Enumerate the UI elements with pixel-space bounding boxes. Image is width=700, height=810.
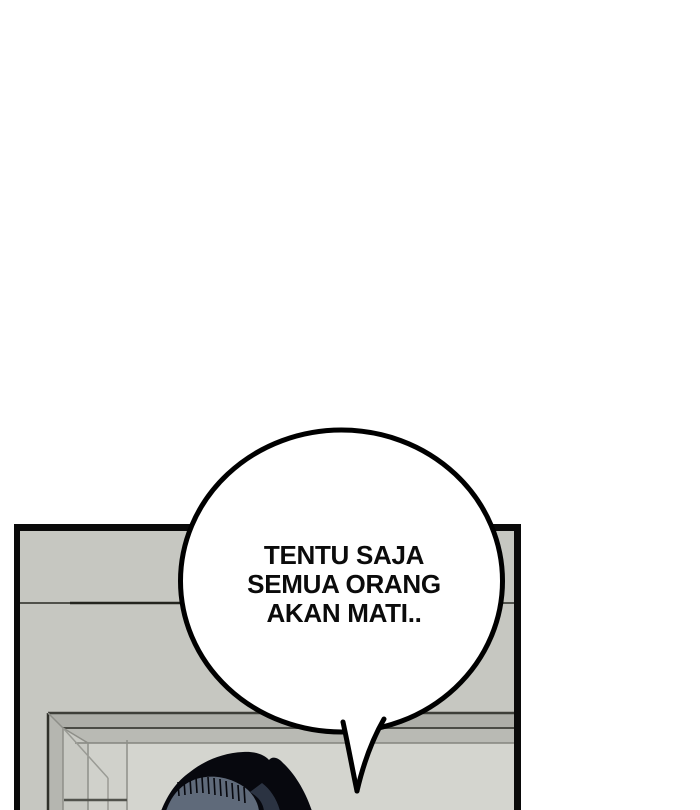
comic-panel-scene — [0, 0, 700, 810]
panel-border-left — [14, 524, 20, 810]
speech-bubble-text: TENTU SAJA SEMUA ORANG AKAN MATI.. — [194, 541, 494, 628]
door-lintel-band-lower — [63, 728, 514, 743]
speech-line: SEMUA ORANG — [194, 570, 494, 599]
door-jamb-outer-face — [48, 713, 63, 810]
speech-line: AKAN MATI.. — [194, 599, 494, 628]
panel-border-right — [514, 524, 521, 810]
speech-line: TENTU SAJA — [194, 541, 494, 570]
comic-page: TENTU SAJA SEMUA ORANG AKAN MATI.. — [0, 0, 700, 810]
